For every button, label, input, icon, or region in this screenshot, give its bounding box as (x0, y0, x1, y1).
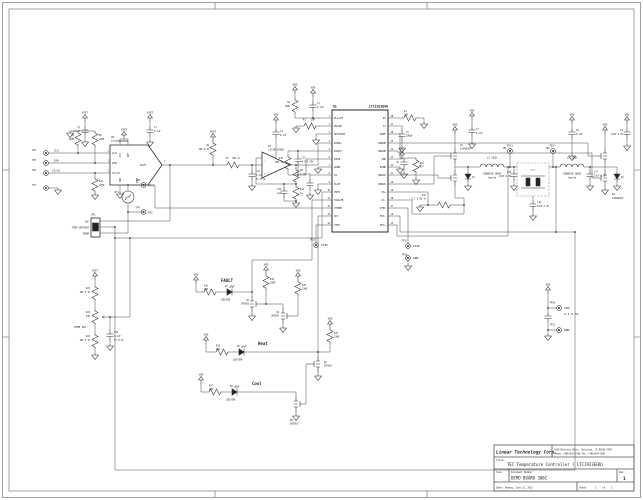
l1-refval: L1 10uH (487, 157, 498, 160)
gnd-symbol (511, 184, 518, 191)
r19-resistor (263, 274, 269, 290)
d6-part: LED/GRN (233, 359, 243, 362)
tp1-testpoint (508, 149, 513, 154)
gnd-symbol (624, 144, 631, 151)
doc-number-label: Document Number: (511, 471, 534, 474)
gnd-symbol (315, 374, 322, 381)
r12-resistor (92, 177, 98, 193)
gnd-symbol (315, 188, 322, 195)
u1-pin-name: TEC+ (380, 223, 387, 227)
serial-input-section: TP4 TP5 TP6 TP7 CLK DIN CS/LD R5 100K R6… (32, 131, 110, 200)
c4-ref: C4 (280, 130, 283, 133)
u1-pin-name: ILIM (334, 182, 341, 186)
gnd-symbol (313, 138, 320, 145)
ntc-minus-label: NTC- (148, 211, 155, 215)
vdd-tp-label: VDD (564, 306, 570, 310)
drawing-frame (3, 3, 641, 498)
u1-pin-name: EAOUT (334, 149, 342, 153)
rv1-ref: RV1 (420, 162, 425, 165)
tp11-testpoint (406, 244, 411, 249)
gnd-symbol (249, 184, 256, 191)
vdd-label: VDD (199, 373, 204, 377)
vdd-label: VDD (274, 113, 279, 117)
tp4-testpoint (44, 151, 49, 156)
schematic-title: TEC Temperature Controller ( LTC1923EGN) (507, 462, 603, 467)
tp10-testpoint (557, 306, 562, 311)
gnd-symbol (293, 201, 300, 208)
u2-pin-gnd: GND (119, 177, 122, 182)
r21-val: 10K 0.1% (79, 291, 90, 294)
vdd-power-symbol (293, 87, 298, 95)
r6-val: 100K (99, 138, 105, 141)
gnd-symbol (147, 140, 154, 147)
sheet-num: 1 (595, 487, 597, 490)
tp2-testpoint (551, 149, 556, 154)
u2-pin-ref: REF (127, 152, 130, 157)
gnd-symbol (465, 184, 472, 191)
tp2-ref: TP2 (546, 147, 551, 150)
c6-ref: C6 (396, 161, 399, 164)
u2-pin1-num: 1 (108, 150, 110, 153)
gnd-symbol (315, 167, 322, 174)
u2-pin2-num: 2 (108, 160, 110, 163)
gnd-symbol (413, 178, 420, 185)
date-value: Monday, June 23, 2013 (505, 487, 533, 490)
q1-ref: Q1 (460, 144, 463, 147)
company-address2: Phone: (408)432-1900 Fax: (408)434-0507 (554, 453, 606, 456)
gnd-symbol (417, 205, 424, 212)
date-label: Date: (496, 487, 503, 490)
c19-val: 1uF (277, 192, 282, 195)
tp7-ref: TP7 (32, 184, 37, 187)
din-signal-label: DIN (54, 159, 59, 163)
gnd-symbol (421, 122, 428, 129)
vdd-power-symbol (264, 267, 269, 275)
r3-val: 10K (311, 119, 316, 122)
c5-ref: C5 (406, 131, 409, 134)
u1-part: LTC1923EGN (369, 105, 388, 109)
schematic-page: TP4 TP5 TP6 TP7 CLK DIN CS/LD R5 100K R6… (0, 0, 643, 500)
d5-part: LED/RED (221, 299, 231, 302)
tp12-ref: TP12 (550, 324, 556, 327)
gnd-symbol (55, 188, 62, 195)
tec-minus-label: TEC- (549, 144, 556, 148)
u1-pin-name: NDRVB (378, 149, 386, 153)
gnd-symbol (397, 167, 404, 174)
q4-ref: Q4 (276, 311, 279, 314)
gnd-symbol (307, 193, 314, 200)
c11-ref: C11 (256, 170, 261, 173)
vdd-power-symbol (570, 117, 575, 125)
tp10-ref: TP10 (550, 302, 556, 305)
r20-resistor (295, 280, 301, 296)
r19-ref: R19 (270, 278, 275, 281)
vdd-label: VDD (453, 123, 458, 127)
vset-label: VSET (92, 269, 99, 273)
r8-val: 9.09K 1% (300, 173, 311, 176)
heat-title: Heat (258, 341, 268, 346)
gnd-symbol (405, 264, 412, 271)
c16-cap (530, 200, 537, 211)
c19-ref: C19 (277, 188, 282, 191)
c23-cap (107, 330, 114, 341)
vset-label: VSET (210, 130, 217, 134)
rv1-potentiometer (413, 158, 419, 174)
c8-val: 0.1uF (576, 133, 583, 136)
vdd-power-symbol (453, 127, 458, 135)
u1-controller: U1 LTC1923EGN PLLLPF RSLEW SDSYNCB EAIN+… (326, 105, 394, 233)
q4-mosfet (281, 308, 293, 324)
c13-ref: C13 (302, 157, 307, 160)
vdd-power-symbol (311, 90, 316, 98)
c3-ref: C3 (154, 126, 157, 129)
output-bridge: VDD VDD VDD VDD VDD TEC TEC+ TP1 TEC- TP… (412, 109, 631, 237)
vset-label: VSET (121, 128, 128, 132)
temp-adjust-divider: VSET R21 10K 0.1% R22 20K TEMP ADJ. R24 … (74, 238, 130, 360)
l1-inductor (480, 164, 504, 167)
fault-indicator: VDD VDD VDD FAULT R16 200 D5 LED/RED Q5 … (194, 263, 308, 333)
c6-cap (401, 158, 408, 169)
u1-pin-name: PLLLPF (334, 116, 344, 120)
jp1-ref: JP1 (91, 214, 96, 217)
u1-pin-name: RSLEW (334, 124, 342, 128)
c1-val: 0.1uF (317, 106, 324, 109)
c23-ref: C23 (114, 331, 119, 334)
gnd-symbol (545, 334, 552, 341)
c1-cap (310, 101, 317, 112)
company-name: Linear Technology Corp. (496, 450, 557, 456)
gnd-symbol (92, 353, 99, 360)
vdd-label: VDD (625, 113, 630, 117)
q1b-mosfet (445, 170, 457, 186)
vset-label: VSET (147, 111, 154, 115)
vdd-power-symbol (470, 113, 475, 121)
vdd-label: VDD (311, 86, 316, 90)
q6-mosfet (308, 356, 320, 372)
u1-pin-name: TEC- (380, 214, 387, 218)
sheet-of-label: of (602, 487, 605, 490)
r6-ref: R6 (99, 134, 102, 137)
tp9-ref: TP9 (136, 207, 141, 210)
vdd-label: VDD (204, 333, 209, 337)
r4-resistor (292, 98, 298, 114)
gnd-symbol (293, 414, 300, 421)
d8-part: LED/GRN (226, 399, 236, 402)
vset-label: VSET (82, 111, 89, 115)
c4-val: 0.1uF (280, 134, 287, 137)
company-address1: 1630 McCarthy Blvd., Milpitas, CA 95035-… (554, 449, 613, 452)
q2a-mosfet (595, 148, 607, 164)
q6-ref: Q6 (324, 361, 327, 364)
tp7-testpoint (44, 186, 49, 191)
r21-ref: R21 (86, 287, 91, 290)
c7-ref: C7 (476, 128, 479, 131)
r4-ref: R4 (287, 101, 290, 104)
u2-pin-vcc: VCC (119, 152, 122, 157)
u2-pin-csld: CS/LD (112, 171, 120, 175)
tp13-testpoint (314, 243, 319, 248)
u1-pin-name: SS (334, 173, 338, 177)
gnd-tp-label: GND (413, 256, 419, 260)
u1-pin-name: FAULTB (334, 198, 344, 202)
itec-label: ITEC (413, 244, 420, 248)
vdd-label: VDD (264, 263, 269, 267)
tp5-testpoint (44, 161, 49, 166)
l2-inductor (560, 164, 584, 167)
q5-mosfet (250, 296, 262, 312)
monitor-testpoints: TP13 VTEC TP11 ITEC TP14 GND (310, 239, 421, 271)
c17-ref: C17 (594, 171, 599, 174)
u3-minus: - (264, 159, 266, 163)
tec-plus-label: TEC+ (506, 144, 513, 148)
r5-resistor (75, 131, 81, 147)
u1-pin-name: VTEC (334, 223, 341, 227)
c15-val: 22uF 6.3V (499, 175, 512, 178)
d5-ref: D5 (225, 285, 228, 288)
u1-pin-name: VSET (334, 190, 341, 194)
c5-val: 100pF (406, 135, 413, 138)
r22-val: 20K (86, 315, 91, 318)
q1-part: Si9801DY (460, 148, 472, 151)
u3-plus: + (264, 172, 266, 176)
r12-val: 100K (99, 184, 105, 187)
gnd-symbol (293, 126, 300, 133)
vdd-label: VDD (570, 113, 575, 117)
tp13-ref: TP13 (310, 239, 316, 242)
vdd-power-symbol (546, 287, 551, 295)
c2-ref: C2 (77, 126, 80, 129)
u1-pin-name: PDRVA (378, 182, 386, 186)
r9-val: 10K 0.1% (198, 148, 209, 151)
u1-pin-name: CS- (381, 198, 386, 202)
d2-ref: D2 (621, 176, 624, 179)
vdd-label: VDD (603, 123, 608, 127)
vtec-label: VTEC (321, 243, 328, 247)
u1-pin-name: EAIN+ (334, 141, 342, 145)
r3-ref: R3 (303, 119, 306, 122)
c11-cap (249, 170, 256, 181)
heat-indicator: VDD VDD Heat R25 200 D6 LED/GRN R23 100K… (204, 317, 340, 405)
r23-val: 100K (334, 336, 340, 339)
r23-ref: R23 (334, 332, 339, 335)
vdd-label: VDD (194, 273, 199, 277)
q4-part: 2N7002 (271, 315, 280, 318)
r5-ref: R5 (71, 134, 74, 137)
u1-pin-name: SDSYNCB (334, 132, 345, 136)
vset-power-symbol (148, 115, 153, 123)
vdd-label: VDD (546, 283, 551, 287)
r16-val: 200 (204, 288, 209, 291)
u1-left-support: VDD VDD R4 100K C1 0.1uF R3 10K R10 10M … (115, 83, 326, 353)
tp5-ref: TP5 (32, 159, 37, 162)
r14-ref: R14 (300, 188, 305, 191)
q8-mosfet (294, 396, 306, 412)
size-label: Size (496, 471, 502, 474)
vdd-range-label: 3.1-5.5V (564, 312, 579, 316)
c23-note: 5% Film (114, 339, 124, 342)
c15-cap (511, 170, 518, 181)
tec-label: TEC (530, 168, 536, 172)
tp8-ref: TP8 (136, 179, 141, 182)
q5-part: 2N7002 (241, 303, 250, 306)
thermistor-section: RT1 TP8 NTC+ TP9 NTC- (115, 179, 326, 233)
gnd-symbol (249, 314, 256, 321)
r10-val: 10M 1% (275, 161, 284, 164)
u1-pin-name: PDRVB (378, 141, 386, 145)
l2-refval: L2 10uH (567, 157, 578, 160)
cool-title: Cool (252, 381, 262, 386)
gnd-symbol (107, 344, 114, 351)
u1-pin-name: PGND (380, 165, 387, 169)
vdd-power-symbol (194, 277, 199, 285)
sheet-total: 1 (611, 487, 613, 490)
c13-cap (295, 155, 302, 166)
u1-ref: U1 (333, 105, 337, 109)
jp1-opt-setpoint: TEMP SETPOINT (72, 227, 90, 230)
c2-val: 0.1uF (73, 130, 80, 133)
u2-ref: U2 (111, 135, 115, 139)
vset-power-symbol (93, 273, 98, 281)
c3-val: 0.1uF (154, 130, 161, 133)
d2-diode (614, 172, 620, 182)
ss-cap (307, 179, 314, 190)
r7-resistor (225, 162, 241, 168)
rt1-ref: RT1 (115, 191, 120, 194)
c15-ref: C15 (507, 171, 512, 174)
u1-pin-name: ITEC (380, 206, 387, 210)
c4-cap (273, 128, 280, 139)
u1-pin-name: H/C (334, 214, 339, 218)
q8-ref: Q8 (290, 419, 293, 422)
r19-val: 100K (270, 282, 276, 285)
c9-cap (624, 128, 631, 139)
r27-val: 200 (209, 388, 214, 391)
r13-sense-resistor (436, 202, 452, 208)
r20-ref: R20 (302, 284, 307, 287)
u2-pin7-num: 7 (164, 161, 166, 164)
u2-pin3-num: 3 (108, 170, 110, 173)
tp11-ref: TP11 (402, 240, 408, 243)
c11-note: 5% Film (256, 178, 266, 181)
r8-ref: R8 (300, 169, 303, 172)
r7-val: 10K 1% (232, 157, 241, 160)
title-label: Title: (496, 459, 505, 462)
c17-cap (587, 170, 594, 181)
vdd-power-symbol (625, 117, 630, 125)
c7-val: 0.1uF (476, 132, 483, 135)
r24-ref: R24 (86, 335, 91, 338)
vset-power-symbol (211, 134, 216, 142)
r24-val: 10K 0.1% (79, 339, 90, 342)
vset-power-symbol (122, 132, 127, 140)
q5-ref: Q5 (246, 299, 249, 302)
u1-pin-name: VREF (380, 132, 387, 136)
c1-ref: C1 (317, 102, 320, 105)
vdd-power-symbol (199, 377, 204, 385)
c5-cap (399, 130, 406, 141)
l2-part: CDRH6D28-100NC (563, 173, 582, 176)
gnd-tp-label: GND (564, 328, 570, 332)
vdd-power-symbol (204, 337, 209, 345)
q1a-mosfet (445, 148, 457, 164)
title-block: Linear Technology Corp. 1630 McCarthy Bl… (494, 445, 634, 491)
q2-part: Si9801DY (612, 197, 624, 200)
vdd-power-symbol (274, 117, 279, 125)
tp14-ref: TP14 (402, 254, 408, 257)
clk-signal-label: CLK (54, 149, 59, 153)
vdd-label: VDD (328, 317, 333, 321)
r4-val: 100K (285, 105, 291, 108)
u1-pin-name: CS+ (381, 190, 386, 194)
r7-ref: R7 (226, 157, 229, 160)
vdd-power-symbol (296, 273, 301, 281)
r24-resistor (92, 333, 98, 349)
c16-val: 22uF 6.3V (537, 205, 550, 208)
l2-mfr: Sumida (568, 177, 577, 180)
tp6-ref: TP6 (32, 169, 37, 172)
jp1-jumper: JP1 DAC TEMP SETPOINT THERM (72, 165, 170, 238)
u1-pin-name: VDD (381, 157, 386, 161)
r14-val: 1% (300, 192, 303, 195)
c17-val: 22uF 6.3V (594, 175, 607, 178)
r5-val: 100K (69, 138, 75, 141)
u1-pin-name: AGND (334, 165, 341, 169)
r22-potentiometer (92, 309, 98, 325)
c8-cap (569, 128, 576, 139)
gnd-symbol (92, 193, 99, 200)
c3-cap (147, 126, 154, 137)
c9-ref: C9 (620, 129, 623, 132)
vset-power-symbol (83, 115, 88, 123)
input-cap (545, 312, 552, 323)
rev-label: Rev: (619, 471, 625, 474)
u2-dac: VSET U2 LTC1658CMS8 1 2 3 7 CLK DIN CS/L… (108, 128, 225, 199)
r1-val: 10K (404, 113, 409, 116)
r13-val: 0.1 0.5W 1% (412, 198, 427, 201)
q6-part: 2N7002 (324, 365, 333, 368)
u1-pin-name: CT (383, 124, 387, 128)
vdd-label: VDD (293, 83, 298, 87)
vdd-power-symbol (328, 321, 333, 329)
vdd-label: VDD (296, 269, 301, 273)
cool-indicator: VDD Cool R27 200 D8 LED/GRN Q8 2N7002 (199, 373, 306, 426)
r21-resistor (92, 285, 98, 301)
d8-ref: D8 (230, 385, 233, 388)
tp4-ref: TP4 (32, 149, 37, 152)
r13-ref: R13 (422, 194, 427, 197)
power-entry: VDD TP10 VDD 3.1-5.5V TP12 GND (545, 283, 579, 341)
r12-ref: R12 (99, 180, 104, 183)
doc-number: DEMO BOARD 388C (511, 476, 548, 481)
gnd-symbol (82, 140, 89, 147)
c8-ref: C8 (576, 129, 579, 132)
u1-pin-name: NDRVA (378, 173, 386, 177)
c16-ref: C16 (537, 201, 542, 204)
u1-pin-name: RT (383, 116, 387, 120)
fault-title: FAULT (221, 278, 234, 283)
u2-part: LTC1658CMS8 (111, 139, 129, 143)
d1-diode (465, 172, 471, 182)
sheet-label: Sheet (579, 487, 587, 490)
gnd-symbol (602, 188, 609, 195)
l1-mfr: Sumida (488, 177, 497, 180)
r3-resistor (302, 123, 318, 129)
temp-adj-label: TEMP ADJ. (74, 325, 88, 329)
schematic-canvas: TP4 TP5 TP6 TP7 CLK DIN CS/LD R5 100K R6… (0, 0, 643, 500)
d6-ref: D6 (237, 345, 240, 348)
vdd-power-symbol (603, 127, 608, 135)
tp12-testpoint (557, 328, 562, 333)
